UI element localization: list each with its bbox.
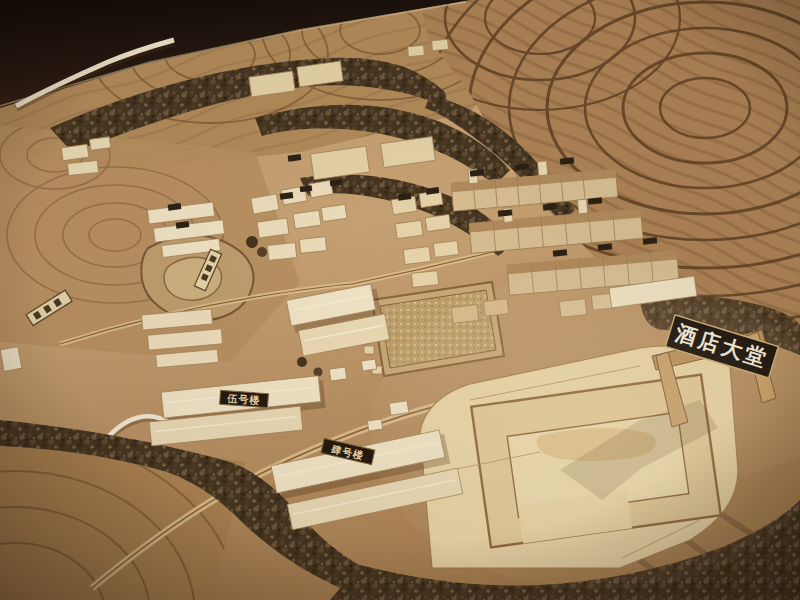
model-scene: 酒店大堂 伍号楼 肆号楼 (0, 0, 800, 600)
photo-architectural-model: 酒店大堂 伍号楼 肆号楼 (0, 0, 800, 600)
vignette-overlay (0, 0, 800, 600)
